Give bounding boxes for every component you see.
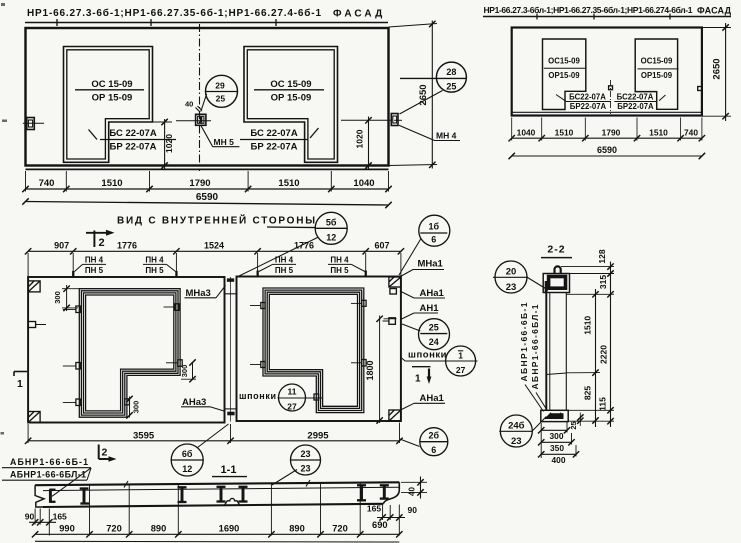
svg-text:АБНР1-66-6Б-1: АБНР1-66-6Б-1 <box>519 302 529 381</box>
svg-text:ФАСАД: ФАСАД <box>697 6 732 16</box>
svg-text:6: 6 <box>431 235 436 245</box>
svg-text:1510: 1510 <box>555 128 574 138</box>
svg-text:400: 400 <box>552 455 566 465</box>
svg-text:24: 24 <box>429 337 439 347</box>
svg-text:1510: 1510 <box>583 316 593 335</box>
svg-text:90: 90 <box>408 505 418 515</box>
svg-text:890: 890 <box>151 523 167 533</box>
svg-text:БС 22-07А: БС 22-07А <box>250 128 298 139</box>
svg-text:ПН 5: ПН 5 <box>145 266 164 275</box>
svg-text:6: 6 <box>431 445 436 455</box>
svg-text:907: 907 <box>54 241 69 251</box>
svg-text:720: 720 <box>332 523 348 533</box>
svg-text:12: 12 <box>326 232 336 242</box>
svg-text:2995: 2995 <box>307 431 329 442</box>
svg-text:1776: 1776 <box>294 241 314 251</box>
svg-text:1020: 1020 <box>164 134 174 153</box>
svg-text:25: 25 <box>569 421 578 429</box>
svg-text:ПН 4: ПН 4 <box>145 255 164 264</box>
svg-text:25: 25 <box>216 94 226 104</box>
svg-text:АН1: АН1 <box>420 303 440 314</box>
svg-text:АБНР1-66-6БЛ-1: АБНР1-66-6БЛ-1 <box>10 470 86 480</box>
svg-text:ПН 5: ПН 5 <box>330 266 349 275</box>
svg-text:БС 22-07А: БС 22-07А <box>109 128 157 139</box>
svg-text:1790: 1790 <box>189 178 210 189</box>
svg-text:27: 27 <box>456 365 466 375</box>
svg-text:690: 690 <box>372 520 388 530</box>
svg-text:300: 300 <box>53 291 62 304</box>
svg-text:БС22-07А: БС22-07А <box>617 92 654 101</box>
svg-text:МНа1: МНа1 <box>418 259 444 270</box>
svg-text:ПН 5: ПН 5 <box>85 266 104 275</box>
svg-text:1: 1 <box>17 378 23 390</box>
svg-text:165: 165 <box>53 512 67 522</box>
svg-text:300: 300 <box>180 365 189 378</box>
svg-text:740: 740 <box>684 128 698 138</box>
svg-text:1790: 1790 <box>602 128 621 138</box>
svg-text:АБНР1-66-6Б-1: АБНР1-66-6Б-1 <box>10 457 88 467</box>
svg-text:БР 22-07А: БР 22-07А <box>251 142 298 153</box>
svg-text:1524: 1524 <box>204 241 224 251</box>
svg-text:90: 90 <box>25 512 35 522</box>
svg-text:1776: 1776 <box>117 241 137 251</box>
svg-text:ПН 5: ПН 5 <box>275 266 294 275</box>
svg-text:11: 11 <box>288 387 297 397</box>
svg-text:20: 20 <box>506 266 517 277</box>
svg-text:НР1-66.27.3-6б-1;НР1-66.27.35-: НР1-66.27.3-6б-1;НР1-66.27.35-6б-1;НР1-6… <box>27 7 321 19</box>
svg-text:2220: 2220 <box>598 345 608 364</box>
svg-text:23: 23 <box>511 436 522 447</box>
svg-text:1: 1 <box>458 350 463 360</box>
svg-text:ПН 4: ПН 4 <box>85 255 104 264</box>
svg-text:АНа1: АНа1 <box>420 393 445 404</box>
svg-text:АБНР1-66-6БЛ-1: АБНР1-66-6БЛ-1 <box>530 304 540 389</box>
svg-text:ОС 15-09: ОС 15-09 <box>91 79 132 90</box>
svg-text:БС22-07А: БС22-07А <box>569 92 606 101</box>
svg-text:27: 27 <box>287 402 297 412</box>
svg-text:12: 12 <box>182 464 192 474</box>
svg-text:ОР 15-09: ОР 15-09 <box>92 93 133 104</box>
svg-text:1510: 1510 <box>101 178 122 189</box>
svg-text:23: 23 <box>300 449 310 459</box>
svg-text:128: 128 <box>597 249 607 263</box>
svg-text:23: 23 <box>506 282 517 293</box>
svg-text:1020: 1020 <box>355 129 365 148</box>
svg-text:3595: 3595 <box>133 431 155 442</box>
svg-text:29: 29 <box>215 81 225 91</box>
svg-text:990: 990 <box>59 523 75 533</box>
svg-text:БР22-07А: БР22-07А <box>570 102 607 111</box>
svg-text:1690: 1690 <box>219 523 240 533</box>
svg-text:40: 40 <box>185 100 193 109</box>
svg-text:ОР15-09: ОР15-09 <box>548 71 580 80</box>
svg-text:165: 165 <box>367 504 381 514</box>
svg-text:БР 22-07А: БР 22-07А <box>110 142 157 153</box>
svg-text:2б: 2б <box>429 431 440 441</box>
svg-text:25: 25 <box>429 323 439 333</box>
svg-text:1510: 1510 <box>649 128 668 138</box>
svg-text:300: 300 <box>550 431 564 441</box>
svg-text:1510: 1510 <box>278 178 299 189</box>
svg-text:28: 28 <box>446 67 456 77</box>
svg-text:890: 890 <box>289 523 305 533</box>
svg-text:1800: 1800 <box>365 360 375 380</box>
svg-text:ОР 15-09: ОР 15-09 <box>271 93 312 104</box>
svg-text:АНа1: АНа1 <box>420 288 445 299</box>
svg-text:ОС15-09: ОС15-09 <box>548 57 580 66</box>
svg-text:315: 315 <box>598 275 608 289</box>
svg-text:2650: 2650 <box>712 58 723 79</box>
svg-text:НР1-66.27.3-6бл-1;НР1-66.27.35: НР1-66.27.3-6бл-1;НР1-66.27.35-6бл-1;НР1… <box>484 5 693 15</box>
svg-text:6590: 6590 <box>196 192 219 203</box>
svg-text:5б: 5б <box>326 217 337 227</box>
svg-text:1б: 1б <box>429 222 440 232</box>
svg-text:МН 4: МН 4 <box>436 131 457 141</box>
svg-text:40: 40 <box>408 487 417 496</box>
svg-text:1: 1 <box>415 374 421 385</box>
svg-text:1040: 1040 <box>353 178 374 189</box>
svg-text:607: 607 <box>374 241 389 251</box>
svg-text:БР22-07А: БР22-07А <box>617 102 654 111</box>
svg-text:ПН 4: ПН 4 <box>330 255 349 264</box>
svg-text:6б: 6б <box>182 449 193 459</box>
svg-text:ОС15-09: ОС15-09 <box>641 57 673 66</box>
svg-text:шпонки: шпонки <box>408 350 447 361</box>
svg-text:ОР15-09: ОР15-09 <box>641 71 673 80</box>
svg-text:825: 825 <box>583 386 593 400</box>
svg-text:1-1: 1-1 <box>221 464 237 476</box>
svg-text:2: 2 <box>102 447 108 459</box>
svg-text:ОС 15-09: ОС 15-09 <box>270 79 311 90</box>
svg-text:2: 2 <box>99 237 105 249</box>
svg-text:ФАСАД: ФАСАД <box>333 9 384 20</box>
svg-text:115: 115 <box>598 397 608 411</box>
svg-text:23: 23 <box>300 464 310 474</box>
svg-text:24б: 24б <box>508 420 525 431</box>
svg-text:300: 300 <box>132 401 141 414</box>
svg-text:1040: 1040 <box>517 128 536 138</box>
svg-text:шпонки: шпонки <box>239 391 276 401</box>
svg-text:740: 740 <box>39 178 55 189</box>
svg-text:6590: 6590 <box>597 145 617 155</box>
svg-text:МН 5: МН 5 <box>214 137 235 147</box>
svg-text:720: 720 <box>106 523 122 533</box>
svg-text:2-2: 2-2 <box>547 244 565 256</box>
svg-text:ВИД С ВНУТРЕННЕЙ СТОРОНЫ: ВИД С ВНУТРЕННЕЙ СТОРОНЫ <box>117 214 316 227</box>
svg-text:350: 350 <box>550 443 564 453</box>
svg-text:25: 25 <box>446 82 456 92</box>
